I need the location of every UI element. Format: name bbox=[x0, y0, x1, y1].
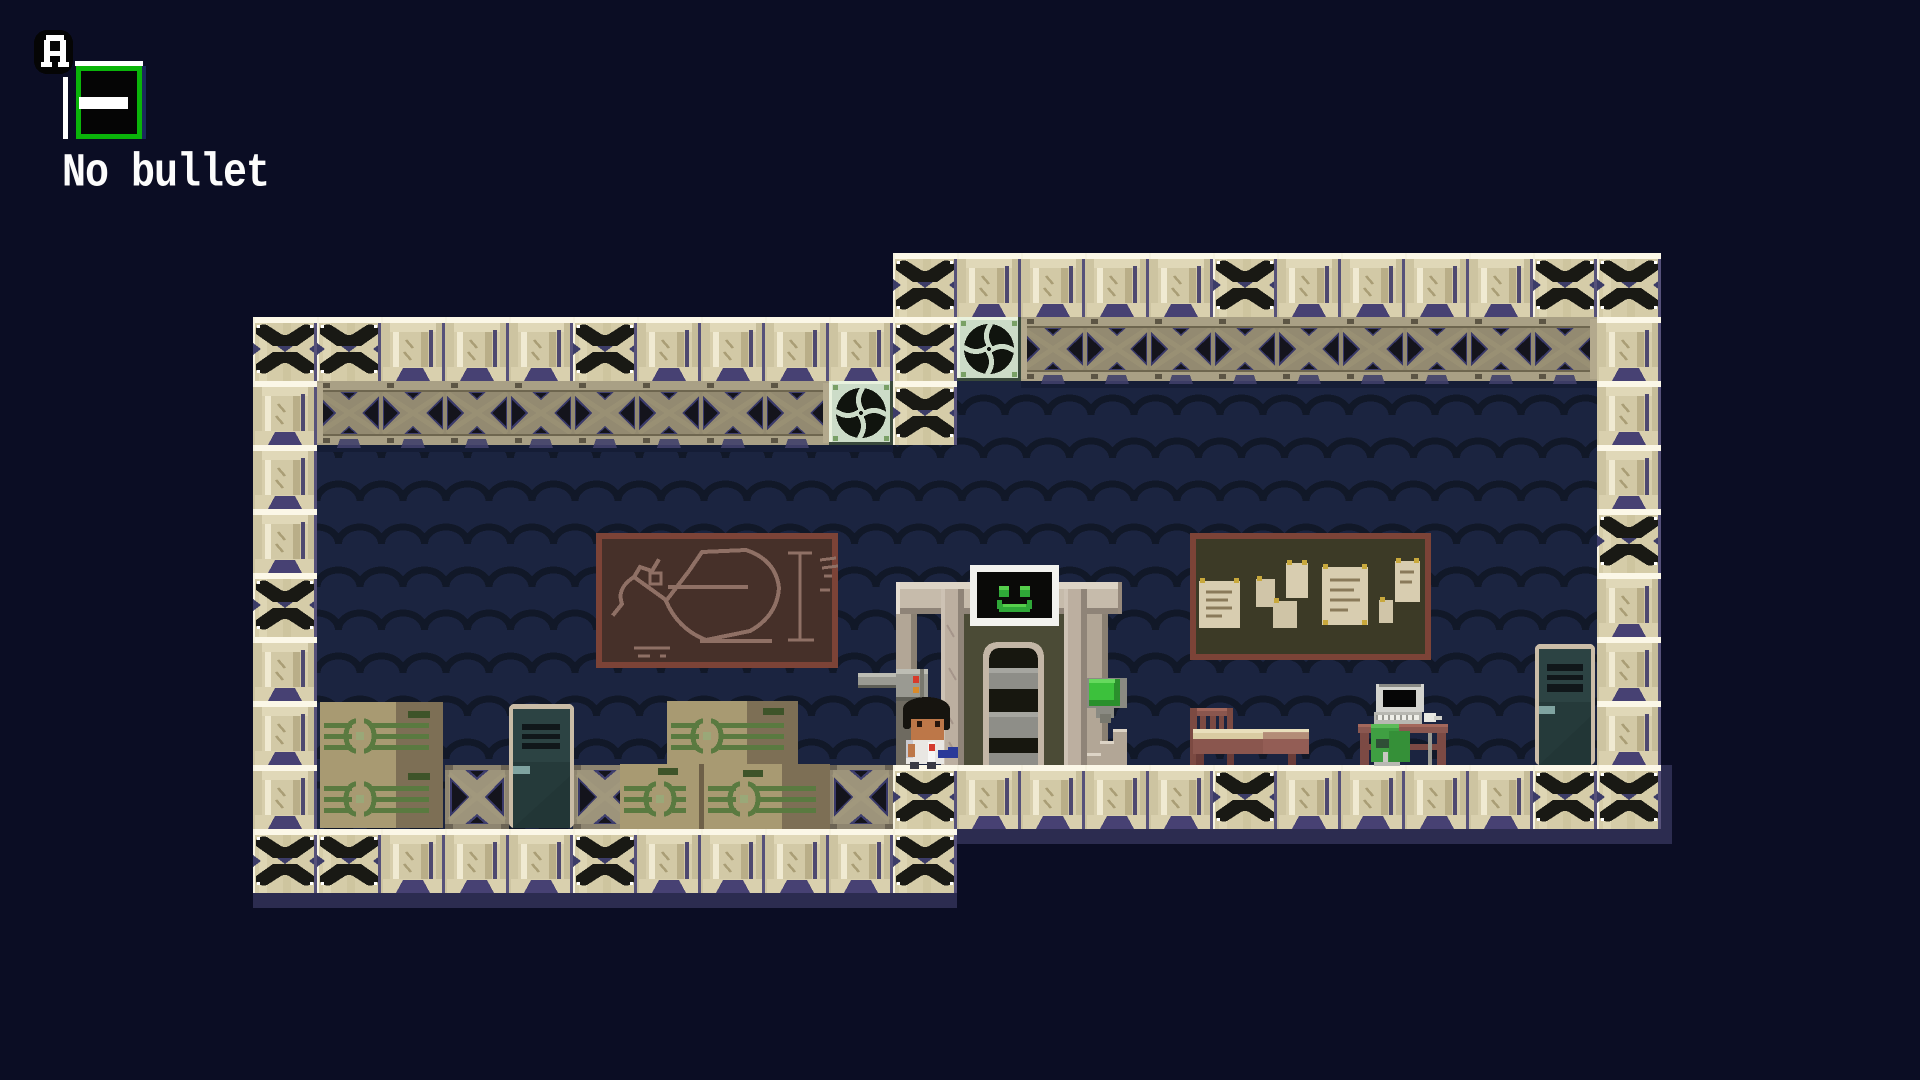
svg-text:No bullet: No bullet bbox=[62, 147, 269, 200]
